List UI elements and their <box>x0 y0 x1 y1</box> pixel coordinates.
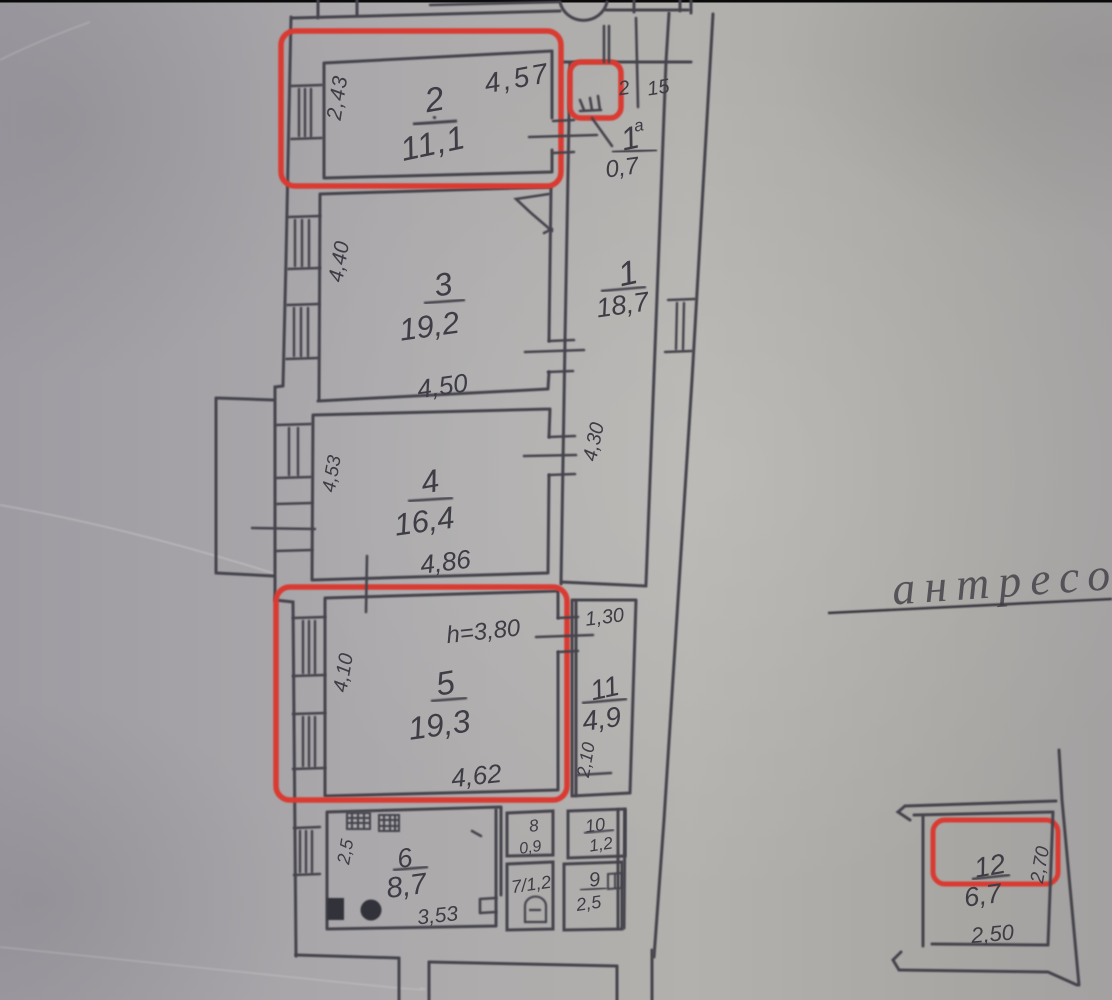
svg-text:4,86: 4,86 <box>418 544 472 580</box>
svg-text:6,7: 6,7 <box>962 878 1004 913</box>
svg-text:0,9: 0,9 <box>518 838 542 858</box>
svg-text:0,7: 0,7 <box>604 152 642 184</box>
svg-text:1,2: 1,2 <box>588 833 615 855</box>
svg-text:4,9: 4,9 <box>580 701 623 737</box>
svg-text:2,50: 2,50 <box>969 919 1016 948</box>
svg-text:15: 15 <box>646 75 672 100</box>
svg-text:8,7: 8,7 <box>384 867 430 905</box>
svg-text:4,62: 4,62 <box>450 758 504 793</box>
svg-text:3,53: 3,53 <box>416 902 459 929</box>
svg-text:2,5: 2,5 <box>574 892 604 916</box>
svg-text:1,30: 1,30 <box>584 604 625 631</box>
